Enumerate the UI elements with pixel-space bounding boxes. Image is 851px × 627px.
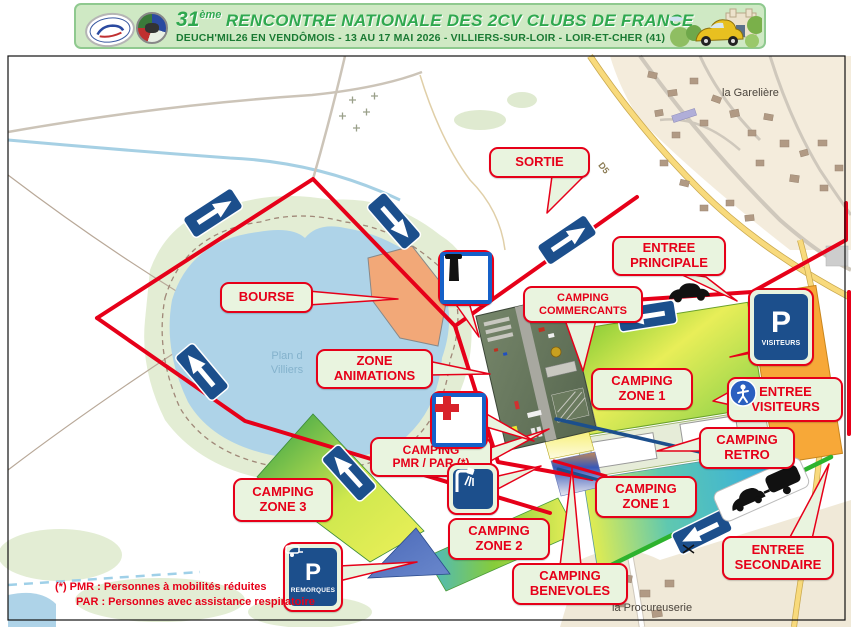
callout-camping-zone1-a: CAMPING ZONE 1	[591, 368, 693, 410]
callout-camping-commercants: CAMPING COMMERCANTS	[523, 286, 643, 323]
deuchmil26-logo	[136, 12, 168, 44]
event-map-poster: la Garelière la Procureuserie Plan d Vil…	[0, 0, 851, 627]
lake-name-label: Plan d Villiers	[252, 350, 322, 378]
trailer-icon	[285, 544, 303, 558]
yellow-2cv-illustration	[666, 7, 762, 49]
parking-remorques-p: P	[305, 561, 321, 585]
orchard-marks	[339, 93, 378, 132]
place-label-gareliere: la Garelière	[722, 87, 779, 99]
callout-entree-visiteurs: ENTREE VISITEURS	[727, 377, 843, 422]
callout-camping-zone1-b: CAMPING ZONE 1	[595, 476, 697, 518]
callout-zone-animations: ZONE ANIMATIONS	[316, 349, 433, 389]
parking-visiteurs-label: VISITEURS	[762, 340, 801, 347]
footnote-par: PAR : Personnes avec assistance respirat…	[76, 596, 315, 608]
callout-camping-retro: CAMPING RETRO	[699, 427, 795, 469]
banner-text: 31ème RENCONTRE NATIONALE DES 2CV CLUBS …	[176, 8, 736, 44]
parking-icon: P VISITEURS	[754, 294, 808, 360]
place-label-procureuserie: la Procureuserie	[612, 602, 692, 614]
site-map: la Garelière la Procureuserie Plan d Vil…	[0, 0, 851, 627]
callout-sortie: SORTIE	[489, 147, 590, 178]
parking-visiteurs-p: P	[771, 308, 791, 338]
mechanic-sign	[438, 250, 494, 306]
callout-camping-benevoles: CAMPING BENEVOLES	[512, 563, 628, 605]
callout-entree-principale: ENTREE PRINCIPALE	[612, 236, 726, 276]
callout-entree-secondaire: ENTREE SECONDAIRE	[722, 536, 834, 580]
association-2cv-clubs-logo	[83, 10, 137, 50]
tool-icon	[440, 252, 492, 304]
event-banner: 31ème RENCONTRE NATIONALE DES 2CV CLUBS …	[74, 3, 766, 49]
parking-remorques-label: REMORQUES	[291, 587, 335, 594]
banner-subtitle: DEUCH'MIL26 EN VENDÔMOIS - 13 AU 17 MAI …	[176, 32, 736, 44]
red-cross-icon	[432, 393, 486, 447]
arrow-sign-exit	[536, 214, 598, 266]
entree-visiteurs-label: ENTREE VISITEURS	[751, 385, 820, 414]
shower-sign	[447, 463, 499, 515]
footnote-pmr: (*) PMR : Personnes à mobilités réduites	[55, 581, 267, 593]
first-aid-sign	[430, 391, 488, 449]
callout-camping-zone2: CAMPING ZONE 2	[448, 518, 550, 560]
callout-camping-zone3: CAMPING ZONE 3	[233, 478, 333, 522]
edition-number: 31ème	[176, 8, 221, 31]
banner-title: RENCONTRE NATIONALE DES 2CV CLUBS DE FRA…	[226, 11, 694, 30]
callout-bourse: BOURSE	[220, 282, 313, 313]
parking-visiteurs-sign: P VISITEURS	[748, 288, 814, 366]
shower-icon	[453, 469, 493, 509]
